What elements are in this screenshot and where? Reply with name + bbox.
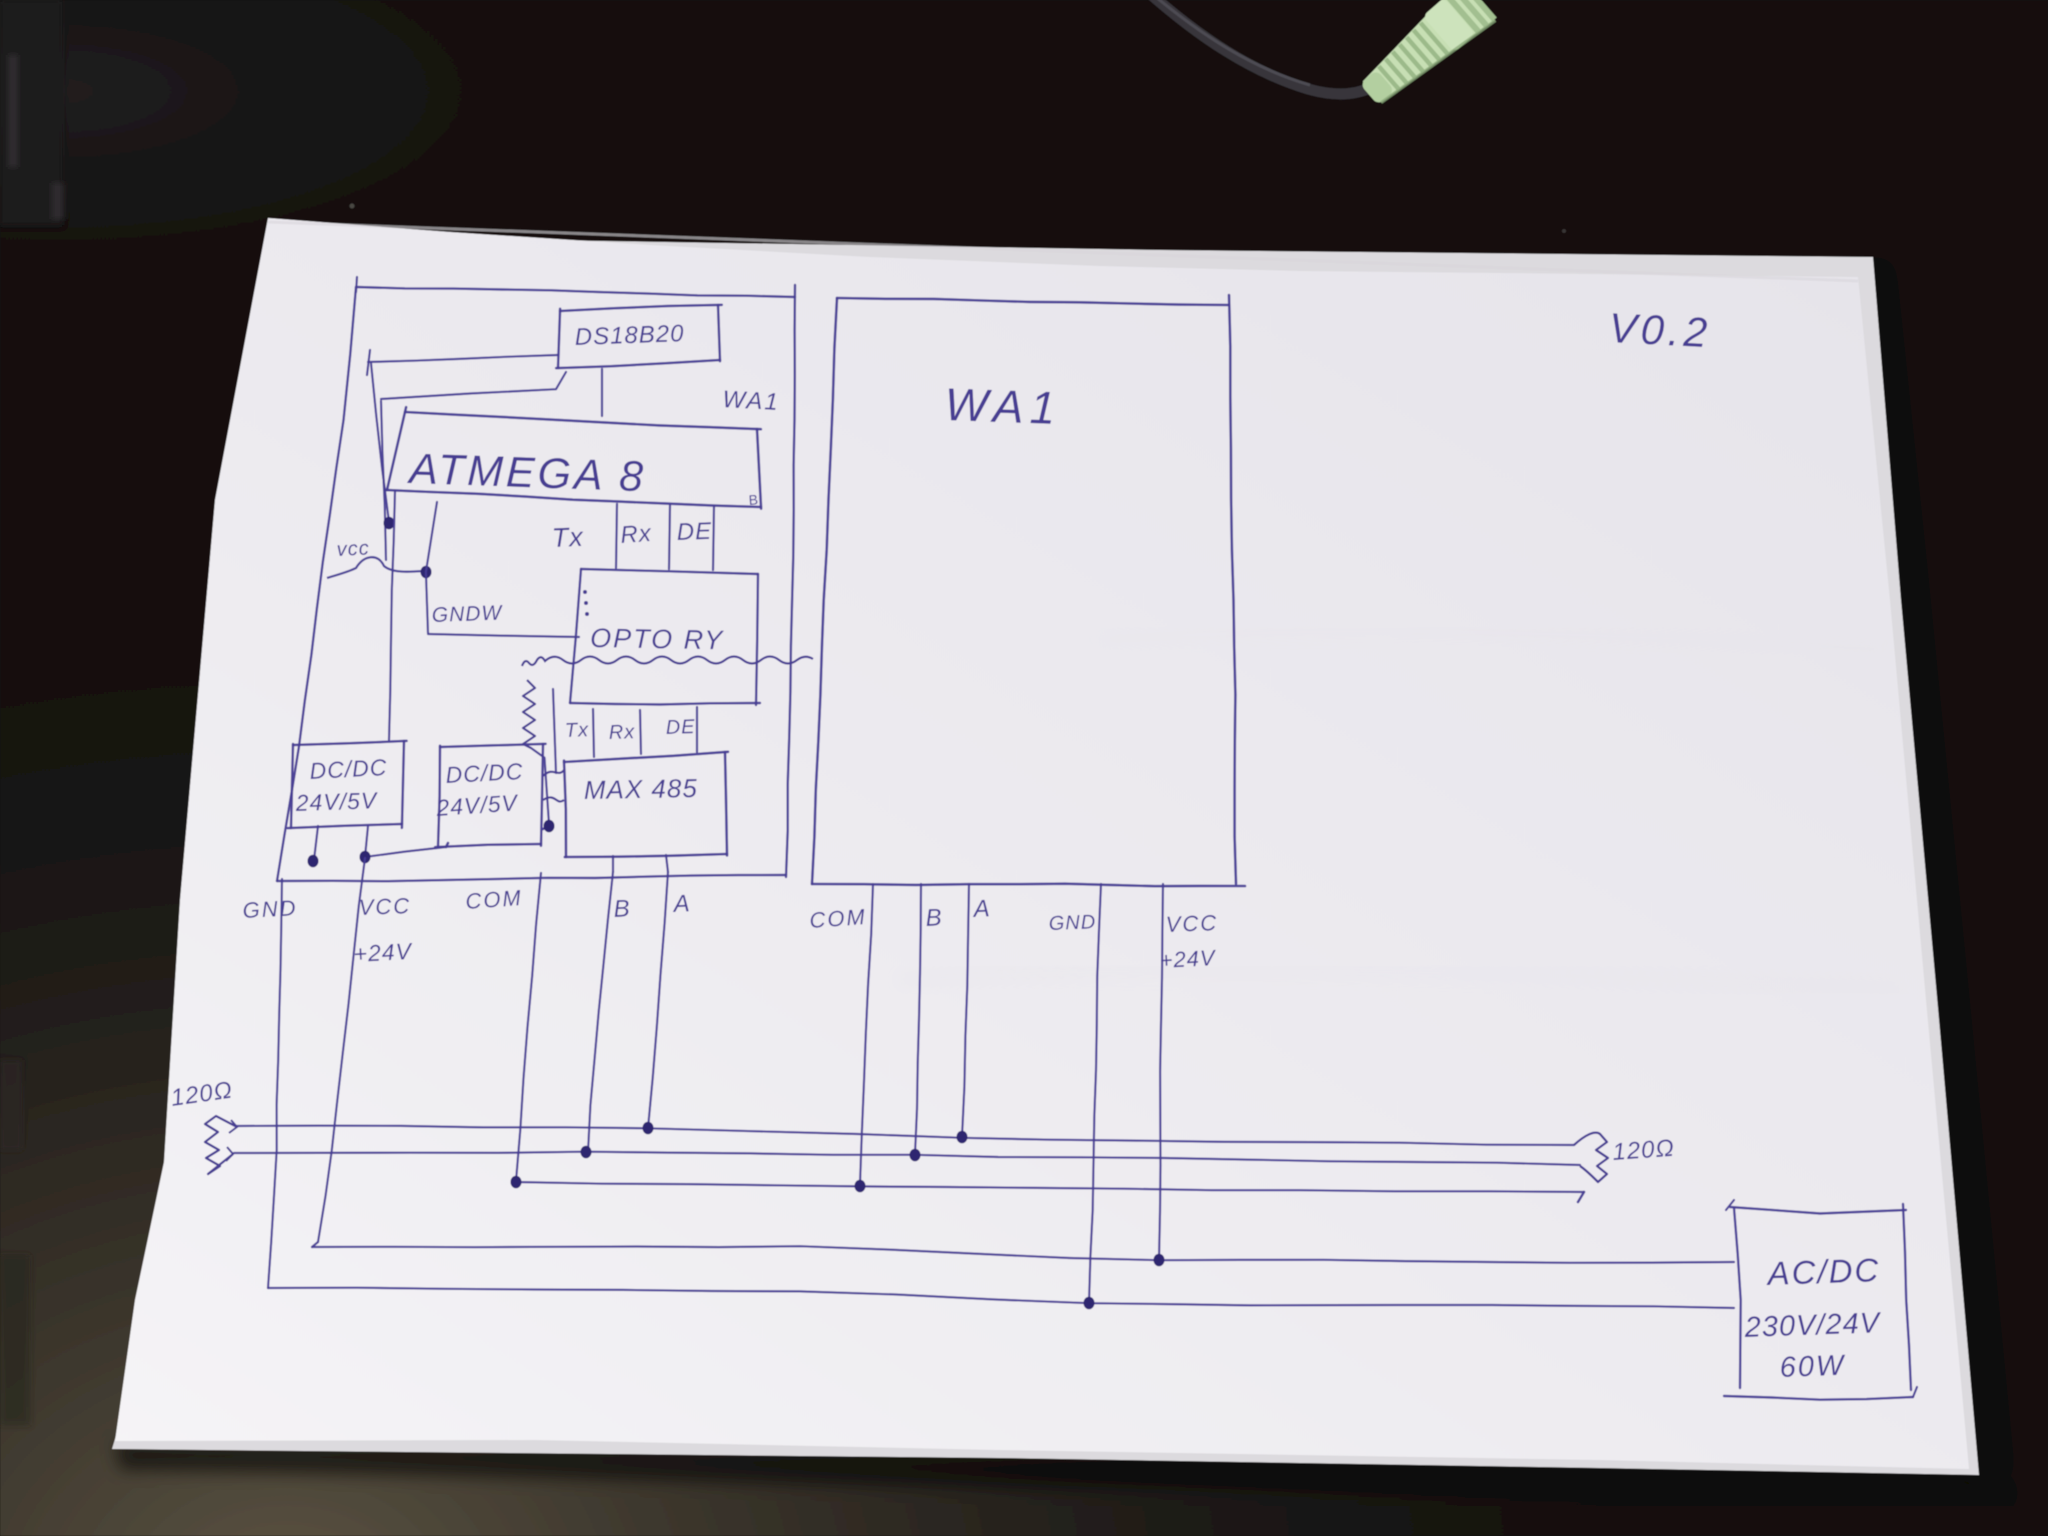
svg-text:ATMEGA 8: ATMEGA 8 [406,445,647,501]
svg-text:+24V: +24V [353,938,414,967]
svg-text:Tx: Tx [564,719,589,742]
svg-text:60W: 60W [1779,1350,1846,1384]
svg-text:+24V: +24V [1159,945,1218,973]
svg-text:GND: GND [242,895,298,923]
svg-text:WA1: WA1 [722,386,781,416]
svg-text:VCC: VCC [358,893,411,920]
svg-text:DS18B20: DS18B20 [574,320,685,351]
svg-text:GNDW: GNDW [431,602,503,627]
svg-text:120Ω: 120Ω [1612,1135,1676,1166]
svg-text:DC/DC: DC/DC [445,758,524,788]
svg-text:230V/24V: 230V/24V [1743,1307,1882,1344]
svg-text:DE: DE [665,716,696,739]
svg-text:Tx: Tx [551,522,585,553]
svg-text:COM: COM [465,885,524,914]
svg-text:OPTO RY: OPTO RY [590,623,725,655]
svg-text:A: A [671,890,691,918]
svg-text:A: A [971,895,991,923]
svg-text:B: B [613,895,631,923]
svg-text:VCC: VCC [1165,910,1218,937]
svg-text:WA1: WA1 [944,378,1063,434]
svg-text:COM: COM [809,904,868,933]
svg-text:MAX 485: MAX 485 [584,773,698,805]
svg-text:vcc: vcc [336,537,370,561]
svg-text:DE: DE [676,518,712,546]
svg-text:V0.2: V0.2 [1608,304,1713,356]
svg-text:DC/DC: DC/DC [309,754,388,784]
svg-text:Rx: Rx [620,520,653,549]
svg-text:GND: GND [1048,911,1096,935]
svg-text:B: B [925,904,943,932]
svg-text:Rx: Rx [608,721,635,744]
svg-text:24V/5V: 24V/5V [294,787,379,816]
svg-text:AC/DC: AC/DC [1765,1251,1881,1292]
